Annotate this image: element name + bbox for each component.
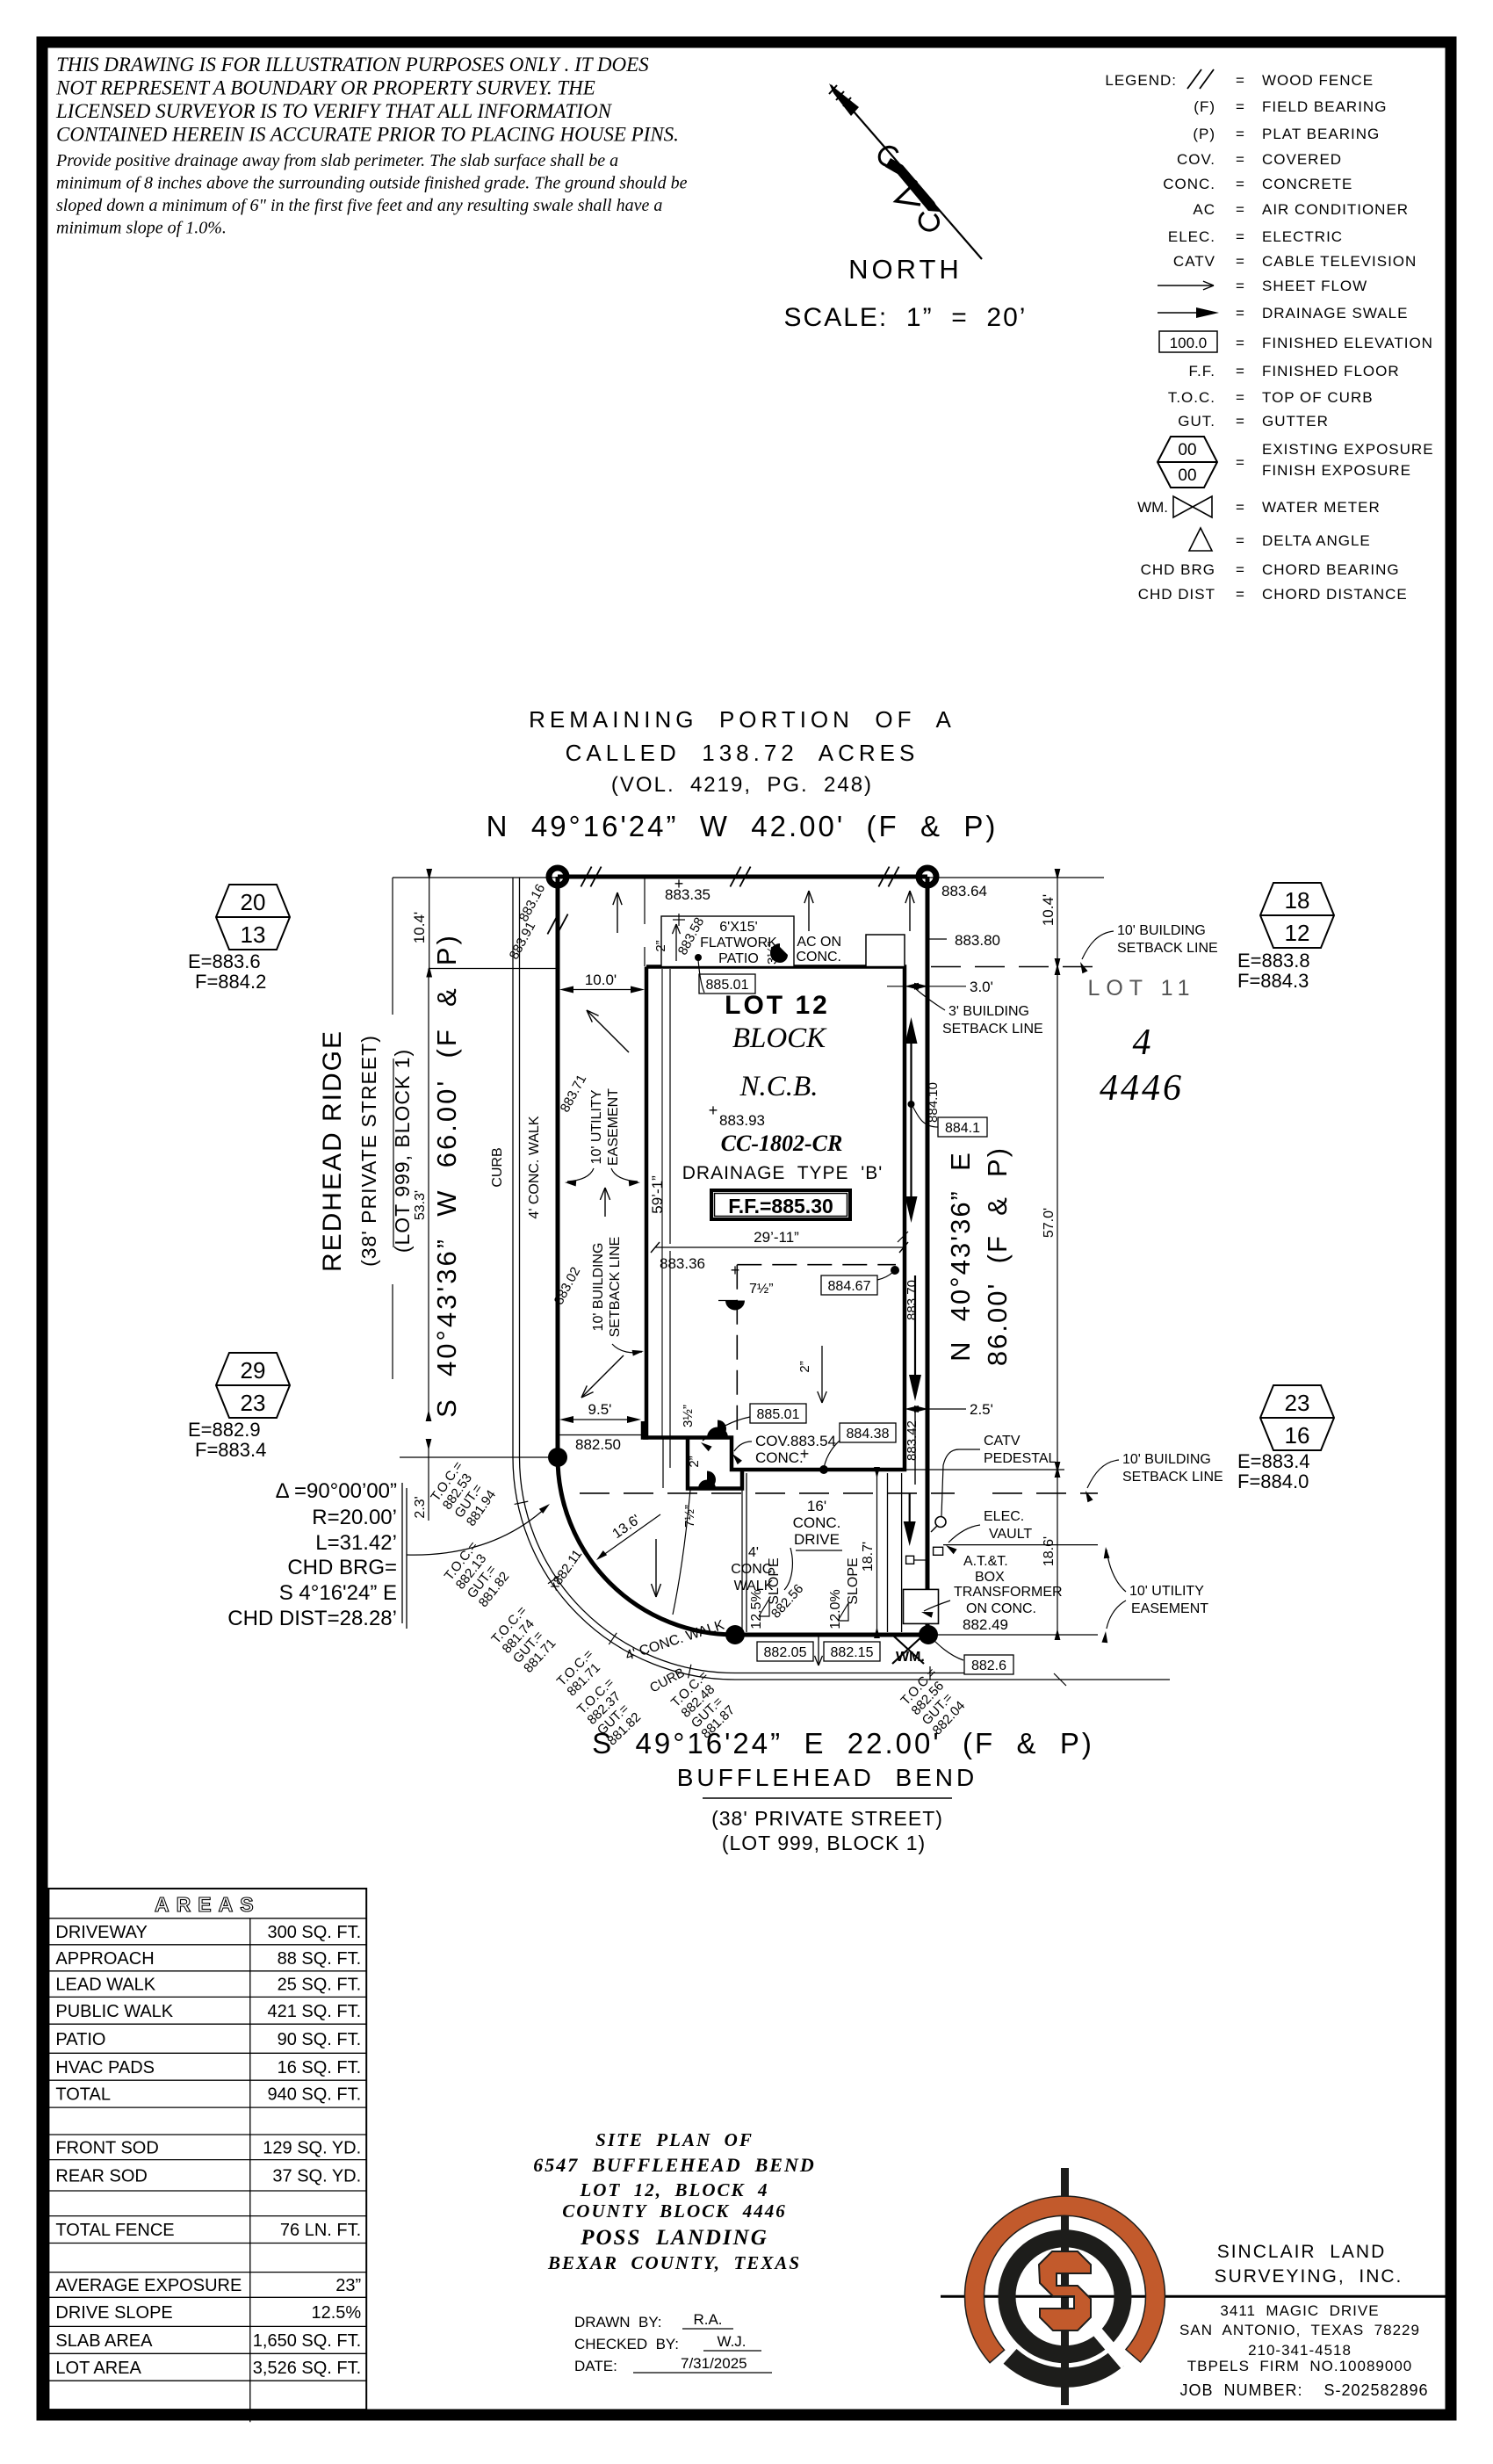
svg-text:WM.: WM. xyxy=(1137,499,1168,516)
svg-text:DELTA ANGLE: DELTA ANGLE xyxy=(1262,532,1371,549)
svg-text:CATV: CATV xyxy=(1173,253,1215,270)
svg-text:(38' PRIVATE STREET): (38' PRIVATE STREET) xyxy=(711,1807,943,1830)
svg-text:CATV: CATV xyxy=(984,1434,1021,1449)
svg-text:DRIVE SLOPE: DRIVE SLOPE xyxy=(55,2303,172,2323)
svg-text:SITE PLAN OF: SITE PLAN OF xyxy=(595,2129,754,2150)
svg-text:00: 00 xyxy=(1178,441,1196,459)
svg-text:S 40°43'36” W 66.00' (F &: S 40°43'36” W 66.00' (F & P) xyxy=(431,933,462,1418)
svg-text:=: = xyxy=(1236,561,1244,578)
svg-text:23: 23 xyxy=(241,1390,266,1416)
svg-text:E=882.9: E=882.9 xyxy=(188,1419,261,1441)
svg-text:=: = xyxy=(1236,305,1244,322)
svg-text:57.0': 57.0' xyxy=(1042,1208,1057,1238)
svg-text:F=884.3: F=884.3 xyxy=(1237,970,1309,992)
svg-text:EASEMENT: EASEMENT xyxy=(1131,1601,1208,1616)
svg-text:884.10: 884.10 xyxy=(926,1082,941,1123)
svg-text:90 SQ. FT.: 90 SQ. FT. xyxy=(278,2030,362,2049)
svg-text:EXISTING EXPOSURE: EXISTING EXPOSURE xyxy=(1262,441,1434,458)
svg-text:3,526 SQ. FT.: 3,526 SQ. FT. xyxy=(253,2359,361,2378)
svg-text:PATIO: PATIO xyxy=(55,2030,105,2049)
svg-text:100.0: 100.0 xyxy=(1170,335,1208,351)
svg-text:20: 20 xyxy=(241,889,266,915)
svg-text:10' BUILDING: 10' BUILDING xyxy=(591,1243,606,1332)
svg-text:883.36: 883.36 xyxy=(660,1255,705,1272)
svg-text:SLAB AREA: SLAB AREA xyxy=(55,2331,153,2351)
svg-text:883.80: 883.80 xyxy=(955,932,1000,949)
svg-text:REAR SOD: REAR SOD xyxy=(55,2166,147,2186)
svg-text:F=884.0: F=884.0 xyxy=(1237,1470,1309,1492)
svg-text:=: = xyxy=(1236,278,1244,294)
svg-text:300 SQ. FT.: 300 SQ. FT. xyxy=(267,1923,361,1942)
svg-text:18: 18 xyxy=(1285,887,1310,914)
svg-text:COV.883.54: COV.883.54 xyxy=(755,1433,836,1449)
svg-text:TBPELS FIRM NO.10089000: TBPELS FIRM NO.10089000 xyxy=(1187,2358,1413,2374)
svg-text:E=883.6: E=883.6 xyxy=(188,950,261,972)
svg-text:S 49°16'24” E 22.00' (F &: S 49°16'24” E 22.00' (F & P) xyxy=(592,1727,1094,1759)
svg-text:421 SQ. FT.: 421 SQ. FT. xyxy=(267,2002,361,2021)
svg-text:SETBACK LINE: SETBACK LINE xyxy=(1117,941,1218,956)
svg-text:R.A.: R.A. xyxy=(693,2311,722,2328)
svg-text:882.15: 882.15 xyxy=(831,1645,874,1660)
svg-text:3.0': 3.0' xyxy=(970,979,993,995)
svg-text:DRIVE: DRIVE xyxy=(794,1531,840,1548)
svg-text:APPROACH: APPROACH xyxy=(55,1949,154,1969)
svg-text:ELECTRIC: ELECTRIC xyxy=(1262,228,1343,245)
svg-text:2”: 2” xyxy=(687,1456,702,1467)
svg-text:10' BUILDING: 10' BUILDING xyxy=(1122,1452,1211,1467)
svg-text:883.42: 883.42 xyxy=(905,1420,920,1461)
svg-text:(F): (F) xyxy=(1194,98,1215,115)
svg-text:7½”: 7½” xyxy=(749,1282,774,1297)
svg-text:4446: 4446 xyxy=(1100,1068,1184,1109)
svg-text:BLOCK: BLOCK xyxy=(732,1022,827,1054)
svg-text:PEDESTAL: PEDESTAL xyxy=(984,1451,1057,1466)
svg-text:29: 29 xyxy=(241,1357,266,1384)
svg-text:E=883.4: E=883.4 xyxy=(1237,1450,1310,1472)
svg-text:WOOD FENCE: WOOD FENCE xyxy=(1262,72,1374,89)
svg-text:10.4': 10.4' xyxy=(411,912,428,943)
svg-text:SAN ANTONIO, TEXAS 78229: SAN ANTONIO, TEXAS 78229 xyxy=(1179,2322,1420,2338)
svg-text:COUNTY BLOCK 4446: COUNTY BLOCK 4446 xyxy=(562,2200,786,2222)
svg-text:BUFFLEHEAD BEND: BUFFLEHEAD BEND xyxy=(677,1764,978,1791)
svg-text:CONC.: CONC. xyxy=(793,1514,841,1531)
svg-text:CHD DIST=28.28’: CHD DIST=28.28’ xyxy=(227,1607,397,1630)
svg-text:12.0%: 12.0% xyxy=(828,1589,843,1629)
svg-text:882.6: 882.6 xyxy=(971,1658,1006,1673)
svg-text:SINCLAIR LAND: SINCLAIR LAND xyxy=(1217,2242,1387,2262)
svg-text:CC-1802-CR: CC-1802-CR xyxy=(721,1131,843,1156)
svg-text:=: = xyxy=(1236,201,1244,218)
svg-text:AREAS: AREAS xyxy=(155,1893,261,1916)
svg-text:+: + xyxy=(674,875,684,892)
svg-text:2”: 2” xyxy=(797,1361,812,1372)
svg-text:9.5': 9.5' xyxy=(588,1401,612,1418)
svg-text:AIR CONDITIONER: AIR CONDITIONER xyxy=(1262,201,1409,218)
svg-text:(VOL. 4219, PG. 248): (VOL. 4219, PG. 248) xyxy=(611,773,873,797)
svg-text:885.01: 885.01 xyxy=(757,1407,800,1422)
svg-text:TRANSFORMER: TRANSFORMER xyxy=(954,1585,1063,1600)
svg-text:LOT 11: LOT 11 xyxy=(1087,976,1195,1001)
svg-text:=: = xyxy=(1236,126,1244,142)
svg-text:=: = xyxy=(1236,532,1244,549)
svg-text:L=31.42’: L=31.42’ xyxy=(315,1531,397,1555)
svg-text:S 4°16'24” E: S 4°16'24” E xyxy=(279,1581,397,1605)
svg-text:EASEMENT: EASEMENT xyxy=(606,1088,621,1166)
svg-text:Provide positive drainage away: Provide positive drainage away from slab… xyxy=(55,151,618,170)
svg-text:129 SQ. YD.: 129 SQ. YD. xyxy=(263,2138,361,2157)
svg-text:POSS LANDING: POSS LANDING xyxy=(580,2226,768,2250)
svg-text:CONTAINED HEREIN IS ACCURATE P: CONTAINED HEREIN IS ACCURATE PRIOR TO PL… xyxy=(56,124,679,146)
svg-text:88 SQ. FT.: 88 SQ. FT. xyxy=(278,1949,362,1969)
svg-text:883.93: 883.93 xyxy=(719,1112,765,1129)
svg-text:=: = xyxy=(1236,98,1244,115)
svg-text:CONC.: CONC. xyxy=(1163,176,1215,192)
svg-text:13: 13 xyxy=(241,921,266,948)
svg-text:GUTTER: GUTTER xyxy=(1262,413,1329,430)
svg-text:1,650 SQ. FT.: 1,650 SQ. FT. xyxy=(253,2331,361,2351)
svg-text:JOB NUMBER: S-202582896: JOB NUMBER: S-202582896 xyxy=(1179,2381,1428,2399)
svg-text:(P): (P) xyxy=(1193,126,1215,142)
svg-text:882.49: 882.49 xyxy=(963,1616,1008,1633)
svg-text:29’-11”: 29’-11” xyxy=(754,1229,799,1246)
svg-text:882.50: 882.50 xyxy=(575,1436,621,1453)
svg-text:+: + xyxy=(800,1445,810,1463)
svg-text:6547 BUFFLEHEAD BEND: 6547 BUFFLEHEAD BEND xyxy=(533,2154,816,2176)
svg-text:W.J.: W.J. xyxy=(717,2333,746,2350)
svg-text:minimum slope of 1.0%.: minimum slope of 1.0%. xyxy=(56,219,227,238)
svg-text:16: 16 xyxy=(1285,1422,1310,1449)
svg-text:CALLED 138.72 ACRES: CALLED 138.72 ACRES xyxy=(566,740,920,766)
svg-text:SCALE: 1” = 20’: SCALE: 1” = 20’ xyxy=(784,303,1028,332)
svg-text:CHECKED BY:: CHECKED BY: xyxy=(574,2336,679,2352)
svg-text:ON CONC.: ON CONC. xyxy=(966,1601,1036,1616)
svg-text:=: = xyxy=(1236,228,1244,245)
svg-text:=: = xyxy=(1236,389,1244,406)
svg-text:10' BUILDING: 10' BUILDING xyxy=(1117,923,1206,938)
svg-text:CONC.: CONC. xyxy=(755,1449,804,1466)
svg-text:LOT 12: LOT 12 xyxy=(725,991,830,1020)
svg-text:CONCRETE: CONCRETE xyxy=(1262,176,1352,192)
svg-text:SETBACK LINE: SETBACK LINE xyxy=(1122,1470,1223,1485)
svg-text:(LOT 999, BLOCK 1): (LOT 999, BLOCK 1) xyxy=(391,1049,414,1253)
svg-text:T.O.C.: T.O.C. xyxy=(1168,389,1215,406)
svg-text:940 SQ. FT.: 940 SQ. FT. xyxy=(267,2085,361,2105)
svg-text:N.C.B.: N.C.B. xyxy=(739,1071,819,1102)
svg-text:3½”: 3½” xyxy=(765,942,780,965)
svg-text:LICENSED SURVEYOR IS TO VERIFY: LICENSED SURVEYOR IS TO VERIFY THAT ALL … xyxy=(55,100,613,122)
svg-text:CHORD DISTANCE: CHORD DISTANCE xyxy=(1262,586,1408,603)
svg-text:CHD DIST: CHD DIST xyxy=(1138,586,1215,603)
svg-text:23: 23 xyxy=(1285,1390,1310,1416)
svg-text:F.F.: F.F. xyxy=(1189,363,1215,379)
svg-text:FRONT SOD: FRONT SOD xyxy=(55,2138,158,2157)
svg-text:DRIVEWAY: DRIVEWAY xyxy=(55,1923,147,1942)
svg-text:4' CONC. WALK: 4' CONC. WALK xyxy=(527,1116,542,1218)
svg-text:00: 00 xyxy=(1178,466,1196,485)
svg-text:PATIO: PATIO xyxy=(718,951,759,966)
svg-text:86.00' (F & P): 86.00' (F & P) xyxy=(982,1146,1013,1366)
svg-text:18.7': 18.7' xyxy=(861,1542,876,1572)
svg-text:4': 4' xyxy=(748,1545,759,1560)
svg-text:=: = xyxy=(1236,72,1244,89)
svg-text:3½”: 3½” xyxy=(681,1405,696,1427)
svg-text:TOTAL: TOTAL xyxy=(55,2085,111,2105)
svg-text:883.64: 883.64 xyxy=(941,883,987,900)
svg-text:HVAC PADS: HVAC PADS xyxy=(55,2058,155,2077)
svg-text:12: 12 xyxy=(1285,920,1310,946)
svg-text:TOP OF CURB: TOP OF CURB xyxy=(1262,389,1374,406)
svg-text:TOTAL FENCE: TOTAL FENCE xyxy=(55,2221,174,2240)
svg-text:NOT REPRESENT A BOUNDARY OR PR: NOT REPRESENT A BOUNDARY OR PROPERTY SUR… xyxy=(55,77,595,99)
svg-text:3' BUILDING: 3' BUILDING xyxy=(948,1004,1029,1019)
svg-text:7½”: 7½” xyxy=(682,1505,697,1528)
svg-text:(38' PRIVATE STREET): (38' PRIVATE STREET) xyxy=(357,1035,380,1267)
svg-text:884.67: 884.67 xyxy=(828,1279,871,1294)
svg-text:VAULT: VAULT xyxy=(989,1527,1032,1542)
svg-text:(LOT 999, BLOCK 1): (LOT 999, BLOCK 1) xyxy=(722,1832,926,1854)
svg-text:FINISH EXPOSURE: FINISH EXPOSURE xyxy=(1262,462,1411,479)
svg-text:CHD BRG=: CHD BRG= xyxy=(287,1556,397,1579)
svg-text:18.6': 18.6' xyxy=(1042,1536,1057,1566)
svg-text:210-341-4518: 210-341-4518 xyxy=(1248,2342,1352,2359)
svg-text:FIELD BEARING: FIELD BEARING xyxy=(1262,98,1387,115)
svg-text:AC: AC xyxy=(1193,201,1215,218)
svg-text:SLOPE: SLOPE xyxy=(846,1557,861,1604)
svg-text:AC ON: AC ON xyxy=(797,935,841,950)
svg-text:CONC.: CONC. xyxy=(796,950,841,965)
svg-text:885.01: 885.01 xyxy=(706,978,749,993)
svg-text:DRAWN BY:: DRAWN BY: xyxy=(574,2314,662,2330)
svg-text:WM.: WM. xyxy=(896,1650,925,1665)
svg-text:minimum of 8 inches above the: minimum of 8 inches above the surroundin… xyxy=(56,174,688,193)
svg-text:=: = xyxy=(1236,151,1244,168)
svg-text:Δ =90°00’00”: Δ =90°00’00” xyxy=(276,1479,397,1503)
svg-text:3411 MAGIC DRIVE: 3411 MAGIC DRIVE xyxy=(1220,2302,1379,2319)
svg-text:CURB: CURB xyxy=(490,1147,505,1187)
svg-text:2”: 2” xyxy=(653,940,668,951)
svg-text:LEAD WALK: LEAD WALK xyxy=(55,1976,155,1995)
svg-text:12.5%: 12.5% xyxy=(749,1589,764,1629)
svg-text:23”: 23” xyxy=(335,2276,361,2295)
svg-text:SLOPE: SLOPE xyxy=(767,1557,782,1604)
svg-text:7/31/2025: 7/31/2025 xyxy=(681,2355,747,2372)
svg-text:F.F.=885.30: F.F.=885.30 xyxy=(728,1195,833,1218)
svg-text:AVERAGE EXPOSURE: AVERAGE EXPOSURE xyxy=(55,2276,242,2295)
svg-text:=: = xyxy=(1236,176,1244,192)
svg-text:R=20.00’: R=20.00’ xyxy=(312,1506,397,1529)
svg-text:BEXAR COUNTY, TEXAS: BEXAR COUNTY, TEXAS xyxy=(547,2252,801,2273)
svg-text:10' UTILITY: 10' UTILITY xyxy=(589,1089,604,1164)
svg-text:F=883.4: F=883.4 xyxy=(195,1439,266,1461)
svg-text:884.1: 884.1 xyxy=(945,1121,980,1136)
svg-text:E=883.8: E=883.8 xyxy=(1237,950,1310,972)
svg-text:REMAINING PORTION OF A: REMAINING PORTION OF A xyxy=(529,706,956,733)
svg-text:BOX: BOX xyxy=(975,1570,1005,1585)
svg-text:FINISHED ELEVATION: FINISHED ELEVATION xyxy=(1262,335,1433,351)
svg-text:+: + xyxy=(731,1261,740,1279)
svg-text:=: = xyxy=(1236,413,1244,430)
svg-text:ELEC.: ELEC. xyxy=(984,1509,1024,1524)
svg-text:37 SQ. YD.: 37 SQ. YD. xyxy=(272,2166,361,2186)
svg-text:NORTH: NORTH xyxy=(848,254,963,285)
svg-text:LEGEND:: LEGEND: xyxy=(1105,72,1177,89)
svg-text:CHORD BEARING: CHORD BEARING xyxy=(1262,561,1400,578)
svg-text:A.T.&T.: A.T.&T. xyxy=(963,1554,1008,1569)
svg-text:10' UTILITY: 10' UTILITY xyxy=(1129,1584,1204,1599)
svg-text:53.3': 53.3' xyxy=(413,1190,428,1220)
svg-text:=: = xyxy=(1236,499,1244,516)
svg-text:+: + xyxy=(709,1102,718,1119)
svg-text:COVERED: COVERED xyxy=(1262,151,1342,168)
svg-text:16': 16' xyxy=(807,1498,826,1514)
svg-text:PLAT BEARING: PLAT BEARING xyxy=(1262,126,1380,142)
svg-text:WATER METER: WATER METER xyxy=(1262,499,1381,516)
svg-text:25 SQ. FT.: 25 SQ. FT. xyxy=(278,1976,362,1995)
svg-text:16 SQ. FT.: 16 SQ. FT. xyxy=(278,2058,362,2077)
svg-text:=: = xyxy=(1236,586,1244,603)
svg-text:DRAINAGE TYPE 'B': DRAINAGE TYPE 'B' xyxy=(682,1163,884,1183)
svg-text:GUT.: GUT. xyxy=(1178,413,1215,430)
svg-text:SETBACK LINE: SETBACK LINE xyxy=(942,1022,1043,1037)
svg-text:THIS DRAWING IS FOR ILLUSTRATI: THIS DRAWING IS FOR ILLUSTRATION PURPOSE… xyxy=(56,54,649,76)
svg-text:10.0': 10.0' xyxy=(585,972,617,988)
svg-text:SETBACK LINE: SETBACK LINE xyxy=(608,1237,623,1338)
svg-text:DRAINAGE SWALE: DRAINAGE SWALE xyxy=(1262,305,1408,322)
svg-text:884.38: 884.38 xyxy=(847,1427,890,1442)
svg-text:6'X15': 6'X15' xyxy=(719,920,757,935)
svg-text:REDHEAD RIDGE: REDHEAD RIDGE xyxy=(318,1030,347,1272)
svg-text:LOT 12, BLOCK 4: LOT 12, BLOCK 4 xyxy=(579,2179,768,2200)
svg-text:=: = xyxy=(1236,335,1244,351)
svg-text:N 49°16'24” W 42.00' (F &: N 49°16'24” W 42.00' (F & P) xyxy=(487,810,999,842)
svg-text:4: 4 xyxy=(1133,1022,1151,1063)
svg-text:=: = xyxy=(1236,454,1244,471)
svg-text:ELEC.: ELEC. xyxy=(1168,228,1215,245)
svg-text:N 40°43'36” E: N 40°43'36” E xyxy=(945,1151,976,1362)
svg-text:PUBLIC WALK: PUBLIC WALK xyxy=(55,2002,173,2021)
svg-text:CABLE TELEVISION: CABLE TELEVISION xyxy=(1262,253,1417,270)
svg-text:COV.: COV. xyxy=(1177,151,1215,168)
svg-text:sloped down a minimum of 6" in: sloped down a minimum of 6" in the first… xyxy=(56,196,662,215)
svg-text:SURVEYING, INC.: SURVEYING, INC. xyxy=(1215,2266,1403,2287)
svg-text:CHD BRG: CHD BRG xyxy=(1141,561,1215,578)
svg-text:10.4': 10.4' xyxy=(1040,894,1057,926)
svg-text:882.05: 882.05 xyxy=(764,1645,807,1660)
svg-text:FINISHED FLOOR: FINISHED FLOOR xyxy=(1262,363,1400,379)
svg-text:59’-1”: 59’-1” xyxy=(649,1175,666,1214)
svg-text:F=884.2: F=884.2 xyxy=(195,971,266,993)
svg-text:LOT AREA: LOT AREA xyxy=(55,2359,141,2378)
svg-text:76 LN. FT.: 76 LN. FT. xyxy=(280,2221,361,2240)
svg-text:2.5': 2.5' xyxy=(970,1401,993,1418)
svg-text:12.5%: 12.5% xyxy=(311,2303,361,2323)
svg-text:=: = xyxy=(1236,253,1244,270)
svg-text:883.35: 883.35 xyxy=(665,886,710,903)
svg-text:SHEET FLOW: SHEET FLOW xyxy=(1262,278,1367,294)
svg-text:DATE:: DATE: xyxy=(574,2358,617,2374)
svg-text:883.70: 883.70 xyxy=(905,1280,920,1320)
svg-text:=: = xyxy=(1236,363,1244,379)
svg-text:2.3': 2.3' xyxy=(413,1496,428,1518)
